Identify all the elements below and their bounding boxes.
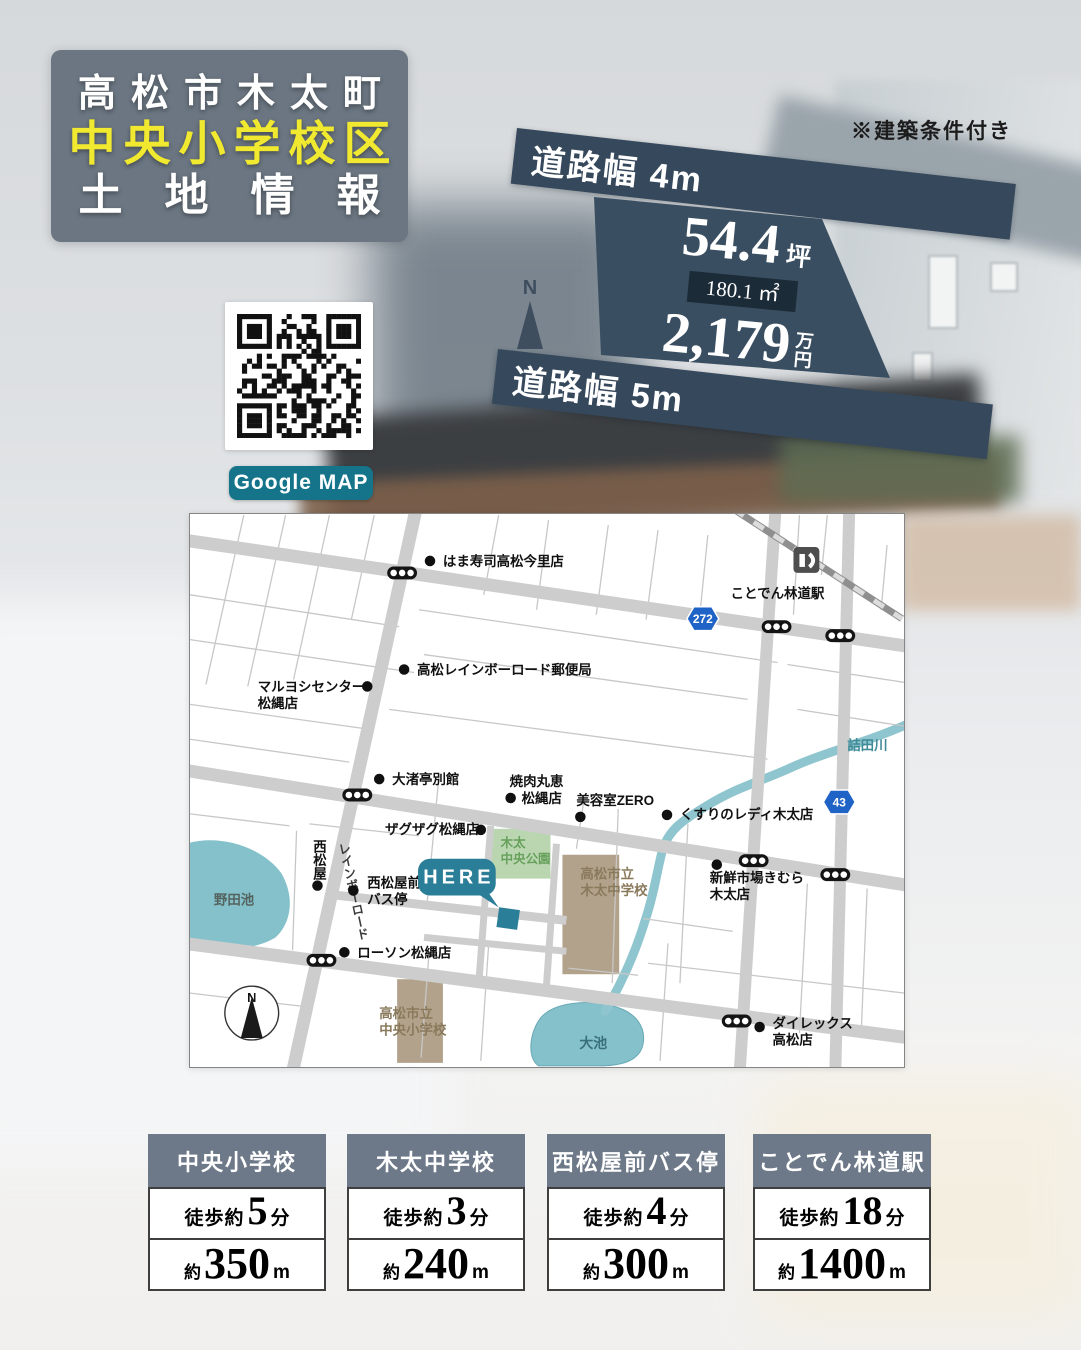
- dist-value: 300: [603, 1242, 669, 1286]
- svg-text:272: 272: [693, 612, 713, 626]
- walk-unit: 分: [271, 1203, 290, 1230]
- traffic-light-icon: [739, 854, 769, 867]
- info-box-2: 木太中学校徒歩約3分約240m: [347, 1134, 525, 1291]
- info-box-walk-row: 徒歩約5分: [148, 1187, 326, 1240]
- poi-label-onagitei: 大渚亭別館: [392, 771, 459, 787]
- route-shield-272: 272: [687, 607, 719, 631]
- walk-minutes: 4: [647, 1191, 667, 1231]
- dist-unit: m: [889, 1262, 906, 1284]
- poi-label-lawson: ローソン松縄店: [357, 944, 451, 960]
- poi-label-nishimatsuya: 西松屋: [311, 840, 327, 882]
- walk-unit: 分: [670, 1203, 689, 1230]
- poi-dot-bus-stop: [348, 885, 359, 896]
- poi-label-noda-pond: 野田池: [214, 892, 255, 908]
- qr-code-icon: [237, 314, 361, 438]
- poi-dot-hamazushi: [425, 556, 436, 567]
- dist-prefix: 約: [778, 1258, 795, 1283]
- info-box-dist-row: 約240m: [347, 1240, 525, 1291]
- info-box-walk-row: 徒歩約3分: [347, 1187, 525, 1240]
- google-map-button[interactable]: Google MAP: [229, 466, 373, 500]
- poi-label-oike-pond: 大池: [579, 1035, 607, 1051]
- tsubo-value: 54.4: [680, 208, 783, 273]
- route-shield-43: 43: [823, 790, 855, 814]
- info-box-dist-row: 約350m: [148, 1240, 326, 1291]
- title-line-city: 高松市木太町: [78, 75, 396, 113]
- info-box-1: 中央小学校徒歩約5分約350m: [148, 1134, 326, 1291]
- poi-dot-biyoshitsu-zero: [575, 812, 586, 823]
- dist-prefix: 約: [383, 1258, 400, 1283]
- bg-photo-window: [912, 352, 933, 382]
- tsubo-unit: 坪: [785, 244, 812, 271]
- walk-prefix: 徒歩約: [583, 1203, 643, 1230]
- title-line-land-info: 土地情報: [79, 174, 423, 218]
- info-box-3: 西松屋前バス停徒歩約4分約300m: [547, 1134, 725, 1291]
- poi-dot-onagitei: [374, 774, 385, 785]
- poi-label-kotoden-rindo-station: ことでん林道駅: [731, 585, 825, 601]
- poi-dot-nishimatsuya: [312, 880, 323, 891]
- dist-prefix: 約: [583, 1258, 600, 1283]
- poi-label-kusuri-no-lady: くすりのレディ木太店: [680, 806, 813, 822]
- building-conditions-note: ※建築条件付き: [851, 115, 1012, 145]
- info-box-walk-row: 徒歩約4分: [547, 1187, 725, 1240]
- bg-photo-window: [928, 255, 958, 329]
- info-box-title: ことでん林道駅: [753, 1134, 931, 1187]
- title-line-school-district: 中央小学校区: [69, 120, 399, 167]
- north-compass-upper: N: [512, 278, 548, 349]
- parcel-price: 2,179 万 円: [660, 304, 816, 375]
- poi-label-zagzag: ザグザグ松縄店: [385, 821, 479, 837]
- parcel-content: 54.4 坪 180.1 ㎡ 2,179 万 円: [623, 204, 862, 379]
- poi-dot-lawson: [339, 947, 350, 958]
- poi-label-hamazushi: はま寿司高松今里店: [443, 553, 564, 569]
- map-canvas: N 27243 はま寿司高松今里店高松レインボーロード郵便局マルヨシセンター松縄…: [190, 514, 904, 1067]
- poi-dot-post-office: [399, 664, 410, 675]
- dist-prefix: 約: [184, 1258, 201, 1283]
- info-box-title: 西松屋前バス停: [547, 1134, 725, 1187]
- walk-prefix: 徒歩約: [383, 1203, 443, 1230]
- dist-unit: m: [672, 1262, 689, 1284]
- walk-unit: 分: [886, 1203, 905, 1230]
- property-square: [496, 907, 519, 930]
- info-box-title: 木太中学校: [347, 1134, 525, 1187]
- parcel-tsubo: 54.4 坪: [680, 208, 815, 276]
- walk-minutes: 5: [248, 1191, 268, 1231]
- traffic-light-icon: [762, 620, 792, 633]
- price-unit: 万 円: [793, 331, 815, 370]
- price-unit-yen: 円: [793, 350, 813, 371]
- traffic-light-icon: [722, 1015, 752, 1028]
- walk-minutes: 18: [843, 1191, 883, 1231]
- poi-dot-kimura-market: [712, 859, 723, 870]
- poi-label-yakiniku-marue-2: 松縄店: [522, 790, 562, 806]
- parcel-diagram: 54.4 坪 180.1 ㎡ 2,179 万 円: [594, 196, 894, 382]
- flyer-page: 高松市木太町 中央小学校区 土地情報 ※建築条件付き 道路幅 4m 道路幅 5m…: [0, 0, 1081, 1350]
- dist-value: 350: [204, 1242, 270, 1286]
- traffic-light-icon: [307, 954, 337, 967]
- poi-dot-yakiniku-marue-2: [505, 793, 516, 804]
- title-block: 高松市木太町 中央小学校区 土地情報: [51, 50, 408, 242]
- north-arrow-icon: [517, 301, 543, 349]
- info-box-dist-row: 約300m: [547, 1240, 725, 1291]
- svg-text:43: 43: [833, 795, 847, 809]
- poi-label-yakiniku-marue: 焼肉丸恵: [510, 773, 564, 789]
- dist-value: 240: [403, 1242, 469, 1286]
- station-icon: [793, 547, 819, 573]
- poi-label-tsumeta-river: 詰田川: [847, 737, 887, 753]
- bg-photo-window: [990, 262, 1018, 292]
- neighborhood-map: N 27243 はま寿司高松今里店高松レインボーロード郵便局マルヨシセンター松縄…: [189, 513, 905, 1068]
- traffic-light-icon: [342, 789, 372, 802]
- dist-unit: m: [273, 1262, 290, 1284]
- info-box-dist-row: 約1400m: [753, 1240, 931, 1291]
- poi-label-post-office: 高松レインボーロード郵便局: [417, 661, 592, 677]
- info-box-title: 中央小学校: [148, 1134, 326, 1187]
- traffic-light-icon: [387, 566, 417, 579]
- poi-label-biyoshitsu-zero: 美容室ZERO: [576, 792, 654, 808]
- qr-code-card: [225, 302, 373, 450]
- traffic-light-icon: [820, 868, 850, 881]
- here-label: HERE: [423, 867, 494, 889]
- poi-dot-dairex: [754, 1022, 765, 1033]
- info-box-4: ことでん林道駅徒歩約18分約1400m: [753, 1134, 931, 1291]
- dist-value: 1400: [798, 1242, 886, 1286]
- map-compass: N: [225, 986, 279, 1040]
- walk-unit: 分: [470, 1203, 489, 1230]
- price-value: 2,179: [660, 304, 793, 373]
- north-label: N: [523, 278, 537, 298]
- info-box-walk-row: 徒歩約18分: [753, 1187, 931, 1240]
- walk-minutes: 3: [447, 1191, 467, 1231]
- poi-dot-kusuri-no-lady: [662, 810, 673, 821]
- walk-prefix: 徒歩約: [184, 1203, 244, 1230]
- bg-photo-desk: [900, 515, 1081, 611]
- walk-prefix: 徒歩約: [779, 1203, 839, 1230]
- traffic-light-icon: [825, 629, 855, 642]
- dist-unit: m: [472, 1262, 489, 1284]
